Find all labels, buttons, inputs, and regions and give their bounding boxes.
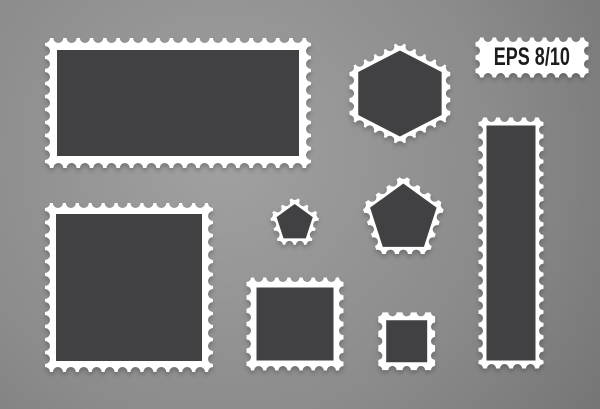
stamp-pentagon-large <box>349 162 458 267</box>
stamp-pentagon-small <box>257 184 332 257</box>
stamp-square-large <box>32 190 226 385</box>
stamp-rect-wide <box>32 25 324 181</box>
eps-badge: EPS 8/10 <box>475 37 588 77</box>
eps-badge-label: EPS 8/10 <box>493 45 569 70</box>
stamp-hexagon <box>337 29 463 158</box>
stamp-rect-tall <box>466 105 556 381</box>
stamp-square-small <box>366 300 447 382</box>
artboard: EPS 8/10 <box>0 0 600 409</box>
stamp-square-medium <box>234 265 356 383</box>
